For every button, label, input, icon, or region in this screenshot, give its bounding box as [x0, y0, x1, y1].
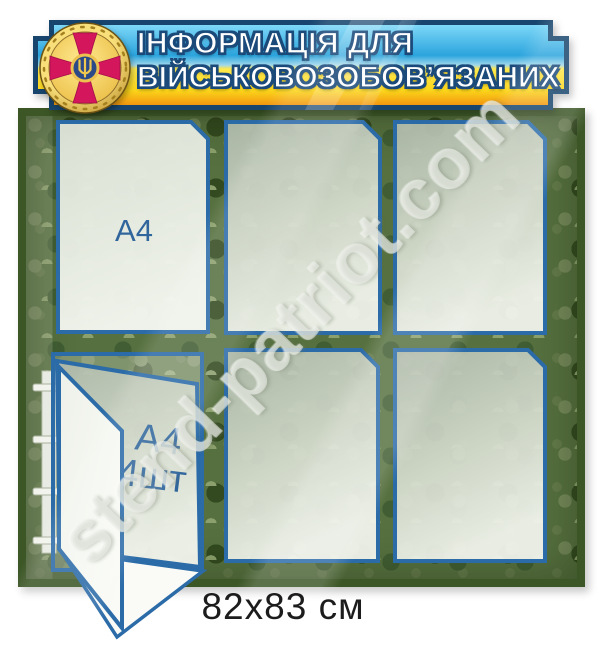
banner-title-line1: ІНФОРМАЦІЯ ДЛЯ	[137, 27, 565, 61]
document-pocket	[226, 122, 380, 333]
folder-count-label: 4шт	[115, 452, 189, 502]
dimensions-label: 82х83 см	[0, 586, 566, 628]
pocket-size-label: A4	[115, 213, 153, 248]
armed-forces-emblem-icon	[38, 21, 132, 115]
document-pocket	[226, 350, 378, 561]
banner-title-line2: ВІЙСЬКОВОЗОБОВ’ЯЗАНИХ	[137, 61, 565, 95]
product-photo-information-stand: A4 A4 4шт	[0, 0, 600, 647]
document-pocket	[395, 350, 545, 561]
banner-title: ІНФОРМАЦІЯ ДЛЯ ВІЙСЬКОВОЗОБОВ’ЯЗАНИХ	[137, 27, 565, 95]
document-pocket	[395, 122, 545, 333]
